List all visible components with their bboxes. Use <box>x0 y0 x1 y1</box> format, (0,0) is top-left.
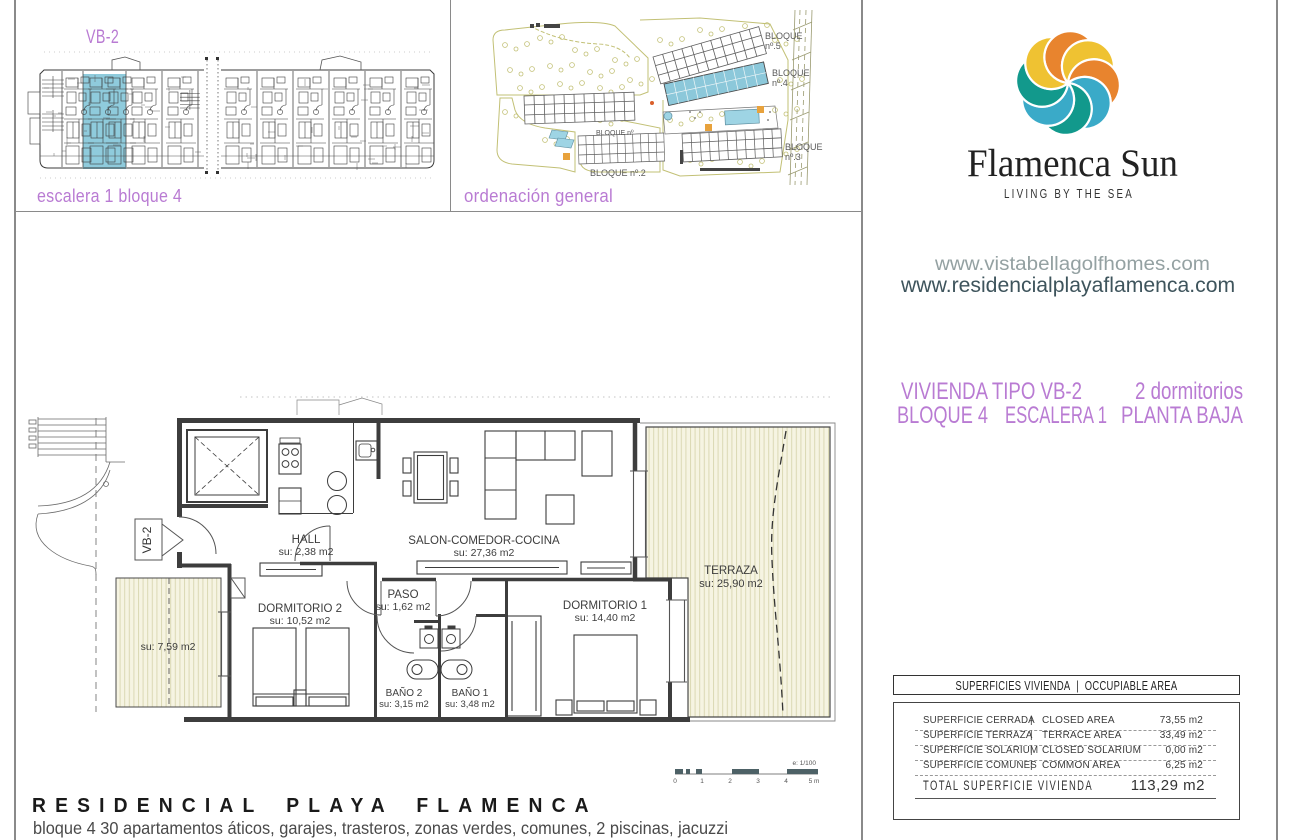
svg-text:3: 3 <box>756 778 760 785</box>
svg-text:SALON-COMEDOR-COCINA: SALON-COMEDOR-COCINA <box>408 535 560 547</box>
svg-text:su: 27,36 m2: su: 27,36 m2 <box>454 547 515 559</box>
svg-text:HALL: HALL <box>292 534 321 546</box>
svg-text:1: 1 <box>700 778 704 785</box>
svg-text:PASO: PASO <box>387 589 418 601</box>
svg-text:2: 2 <box>728 778 732 785</box>
svg-text:su: 3,48 m2: su: 3,48 m2 <box>445 699 495 710</box>
svg-text:0: 0 <box>673 778 677 785</box>
svg-text:su: 25,90 m2: su: 25,90 m2 <box>699 578 763 590</box>
svg-text:e: 1/100: e: 1/100 <box>793 760 817 767</box>
svg-text:BLOQUE nº.2: BLOQUE nº.2 <box>590 168 646 178</box>
svg-text:5 m: 5 m <box>809 778 820 785</box>
svg-text:BLOQUE nº: BLOQUE nº <box>596 130 634 137</box>
svg-text:su: 2,38 m2: su: 2,38 m2 <box>279 546 334 558</box>
svg-text:BAÑO 1: BAÑO 1 <box>452 686 489 699</box>
svg-text:BAÑO 2: BAÑO 2 <box>386 686 423 699</box>
svg-text:su: 1,62 m2: su: 1,62 m2 <box>376 601 431 613</box>
svg-text:su: 14,40 m2: su: 14,40 m2 <box>575 612 636 624</box>
svg-text:nº.3: nº.3 <box>785 152 801 162</box>
svg-text:nº.4: nº.4 <box>772 78 788 88</box>
svg-text:BLOQUE: BLOQUE <box>765 31 803 41</box>
svg-text:su: 10,52 m2: su: 10,52 m2 <box>270 615 331 627</box>
svg-text:nº.5: nº.5 <box>765 41 781 51</box>
svg-text:4: 4 <box>784 778 788 785</box>
svg-text:su: 3,15 m2: su: 3,15 m2 <box>379 699 429 710</box>
svg-text:DORMITORIO 1: DORMITORIO 1 <box>563 600 647 612</box>
svg-text:VB-2: VB-2 <box>140 526 154 553</box>
svg-text:BLOQUE: BLOQUE <box>772 68 810 78</box>
svg-text:su: 7,59 m2: su: 7,59 m2 <box>141 641 196 653</box>
svg-text:DORMITORIO 2: DORMITORIO 2 <box>258 603 342 615</box>
svg-text:TERRAZA: TERRAZA <box>704 565 758 577</box>
svg-text:BLOQUE: BLOQUE <box>785 142 823 152</box>
